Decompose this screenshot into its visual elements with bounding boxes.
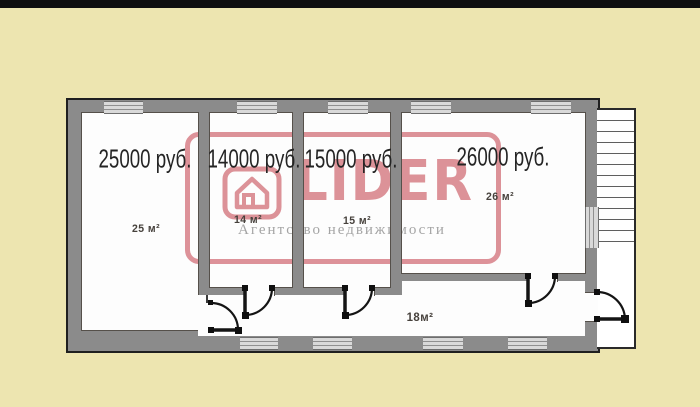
staircase: [597, 108, 636, 349]
area-label-room-25: 25 м²: [132, 223, 160, 235]
window-bottom-3: [423, 337, 463, 350]
window-bottom-4: [508, 337, 547, 350]
room-14-floor: LIDER Агентство недвижимости: [210, 113, 292, 287]
area-label-room-26: 26 м²: [486, 191, 514, 203]
letterbox-top: [0, 0, 700, 8]
window-top-2: [237, 101, 277, 114]
entrance-door-opening: [585, 292, 598, 322]
window-bottom-2: [313, 337, 352, 350]
window-top-5: [531, 101, 571, 114]
price-label-room-14: 14000 руб.: [208, 144, 301, 175]
area-label-corridor: 18м²: [407, 310, 434, 324]
area-label-room-14: 14 м²: [234, 214, 262, 226]
window-right-wall: [585, 207, 599, 248]
staircase-treads: [597, 110, 634, 251]
price-label-room-15: 15000 руб.: [305, 144, 398, 175]
floor-plan-image: LIDER Агентство недвижимости LIDER Агент…: [0, 0, 700, 407]
door-opening-room-15: [345, 287, 375, 296]
room-15-floor: LIDER Агентство недвижимости: [304, 113, 390, 287]
agency-tagline-text: Агентство недвижимости: [402, 222, 475, 239]
area-label-room-15: 15 м²: [343, 215, 371, 227]
window-bottom-1: [240, 337, 278, 350]
price-label-room-26: 26000 руб.: [457, 142, 550, 173]
window-top-1: [104, 101, 143, 114]
door-opening-room-14: [245, 287, 275, 296]
window-top-4: [411, 101, 451, 114]
door-opening-room-26: [528, 273, 558, 282]
price-label-room-25: 25000 руб.: [99, 144, 192, 175]
window-top-3: [328, 101, 368, 114]
